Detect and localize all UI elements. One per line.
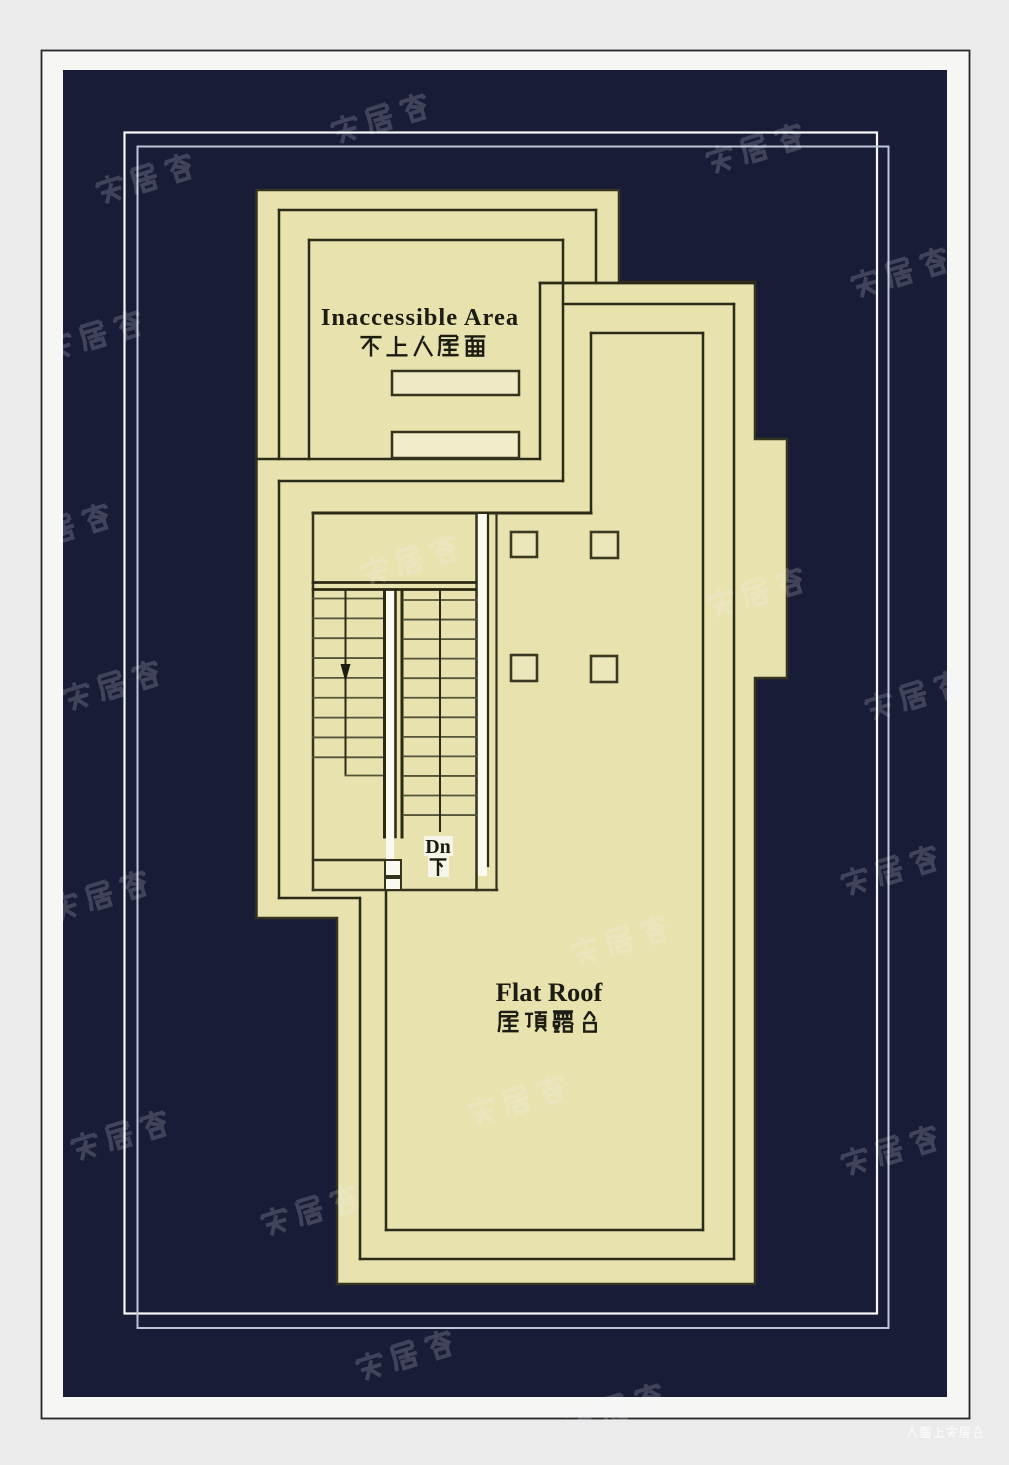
svg-text:Inaccessible Area: Inaccessible Area [321,304,519,331]
svg-text:Flat Roof: Flat Roof [496,977,604,1007]
svg-text:Dn: Dn [425,836,451,858]
